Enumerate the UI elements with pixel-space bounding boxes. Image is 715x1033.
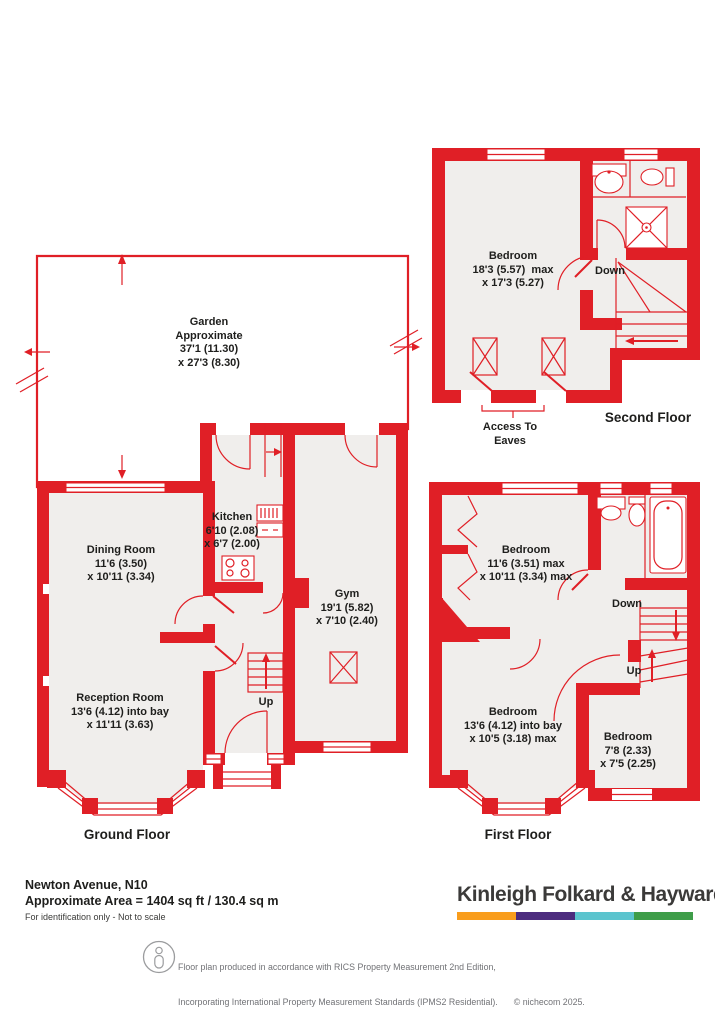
room-dim: 7'8 (2.33) [600, 745, 656, 759]
room-name: Gym [316, 588, 378, 602]
dining-window [66, 483, 165, 492]
room-dim: 11'6 (3.50) [87, 558, 155, 572]
agency-name: Kinleigh Folkard & Hayward [457, 883, 693, 907]
shower-icon [626, 207, 667, 248]
ground-floor-title: Ground Floor [84, 827, 170, 842]
second-floor-title: Second Floor [605, 410, 691, 425]
bedroom3-label-first: Bedroom 7'8 (2.33) x 7'5 (2.25) [600, 731, 656, 772]
first-floor-title: First Floor [485, 827, 552, 842]
approximate-area: Approximate Area = 1404 sq ft / 130.4 sq… [25, 893, 278, 909]
room-dim: 13'6 (4.12) into bay [464, 720, 562, 734]
nichecom-credit: © nichecom 2025. [514, 997, 585, 1009]
property-summary: Newton Avenue, N10 Approximate Area = 14… [25, 877, 278, 922]
room-name: Bedroom [600, 731, 656, 745]
room-dim: x 27'3 (8.30) [175, 357, 242, 371]
bedroom2-label-first: Bedroom 13'6 (4.12) into bay x 10'5 (3.1… [464, 706, 562, 747]
fridge-icon [257, 505, 283, 537]
identification-note: For identification only - Not to scale [25, 912, 278, 922]
property-address: Newton Avenue, N10 [25, 877, 278, 893]
bedroom-label-second: Bedroom 18'3 (5.57) max x 17'3 (5.27) [473, 250, 554, 291]
brand-bar-green [634, 912, 693, 920]
room-dim: x 6'7 (2.00) [204, 538, 260, 552]
room-dim: 6'10 (2.08) [204, 525, 260, 539]
nichecom-person-icon [142, 939, 176, 980]
brand-bar-teal [575, 912, 634, 920]
disclaimer-line2: Incorporating International Property Mea… [178, 997, 498, 1009]
floorplan-page: Garden Approximate 37'1 (11.30) x 27'3 (… [0, 0, 715, 1033]
room-dim: x 11'11 (3.63) [71, 719, 169, 733]
room-dim: x 7'10 (2.40) [316, 615, 378, 629]
room-name: Bedroom [480, 544, 573, 558]
brand-color-bar [457, 912, 693, 920]
reception-room-label: Reception Room 13'6 (4.12) into bay x 11… [71, 692, 169, 733]
access-to-eaves-bracket [482, 405, 544, 418]
room-dim: x 7'5 (2.25) [600, 758, 656, 772]
room-dim: 37'1 (11.30) [175, 343, 242, 357]
brand-bar-orange [457, 912, 516, 920]
room-dim: 19'1 (5.82) [316, 602, 378, 616]
gym-window [323, 742, 371, 752]
room-dim: x 17'3 (5.27) [473, 277, 554, 291]
bathtub-icon [650, 497, 686, 573]
access-to-eaves-label: Access To Eaves [483, 421, 537, 448]
room-dim: 18'3 (5.57) max [473, 264, 554, 278]
agency-logo: Kinleigh Folkard & Hayward [457, 883, 693, 920]
room-name: Kitchen [204, 511, 260, 525]
kitchen-label: Kitchen 6'10 (2.08) x 6'7 (2.00) [204, 511, 260, 552]
disclaimer-line1: Floor plan produced in accordance with R… [178, 962, 585, 974]
garden-label: Garden Approximate 37'1 (11.30) x 27'3 (… [175, 316, 242, 370]
disclaimer: Floor plan produced in accordance with R… [178, 938, 585, 1033]
room-dim: x 10'11 (3.34) [87, 571, 155, 585]
stairs-down-label-first: Down [612, 598, 642, 610]
stairs-up-label-first: Up [627, 665, 642, 677]
gym-label: Gym 19'1 (5.82) x 7'10 (2.40) [316, 588, 378, 629]
room-name: Bedroom [473, 250, 554, 264]
room-name: Dining Room [87, 544, 155, 558]
room-sub: Approximate [175, 330, 242, 344]
stairs-down-label-second: Down [595, 265, 625, 277]
hob-icon [222, 556, 254, 580]
dining-room-label: Dining Room 11'6 (3.50) x 10'11 (3.34) [87, 544, 155, 585]
room-name: Bedroom [464, 706, 562, 720]
room-dim: 11'6 (3.51) max [480, 558, 573, 572]
room-name: Reception Room [71, 692, 169, 706]
sink-icon [592, 164, 626, 193]
room-dim: 13'6 (4.12) into bay [71, 706, 169, 720]
bedroom1-label-first: Bedroom 11'6 (3.51) max x 10'11 (3.34) m… [480, 544, 573, 585]
room-dim: x 10'11 (3.34) max [480, 571, 573, 585]
room-dim: x 10'5 (3.18) max [464, 733, 562, 747]
stairs-up-label-ground: Up [259, 696, 274, 708]
toilet-icon [641, 168, 674, 186]
toilet-icon [629, 497, 645, 526]
brand-bar-purple [516, 912, 575, 920]
room-name: Garden [175, 316, 242, 330]
